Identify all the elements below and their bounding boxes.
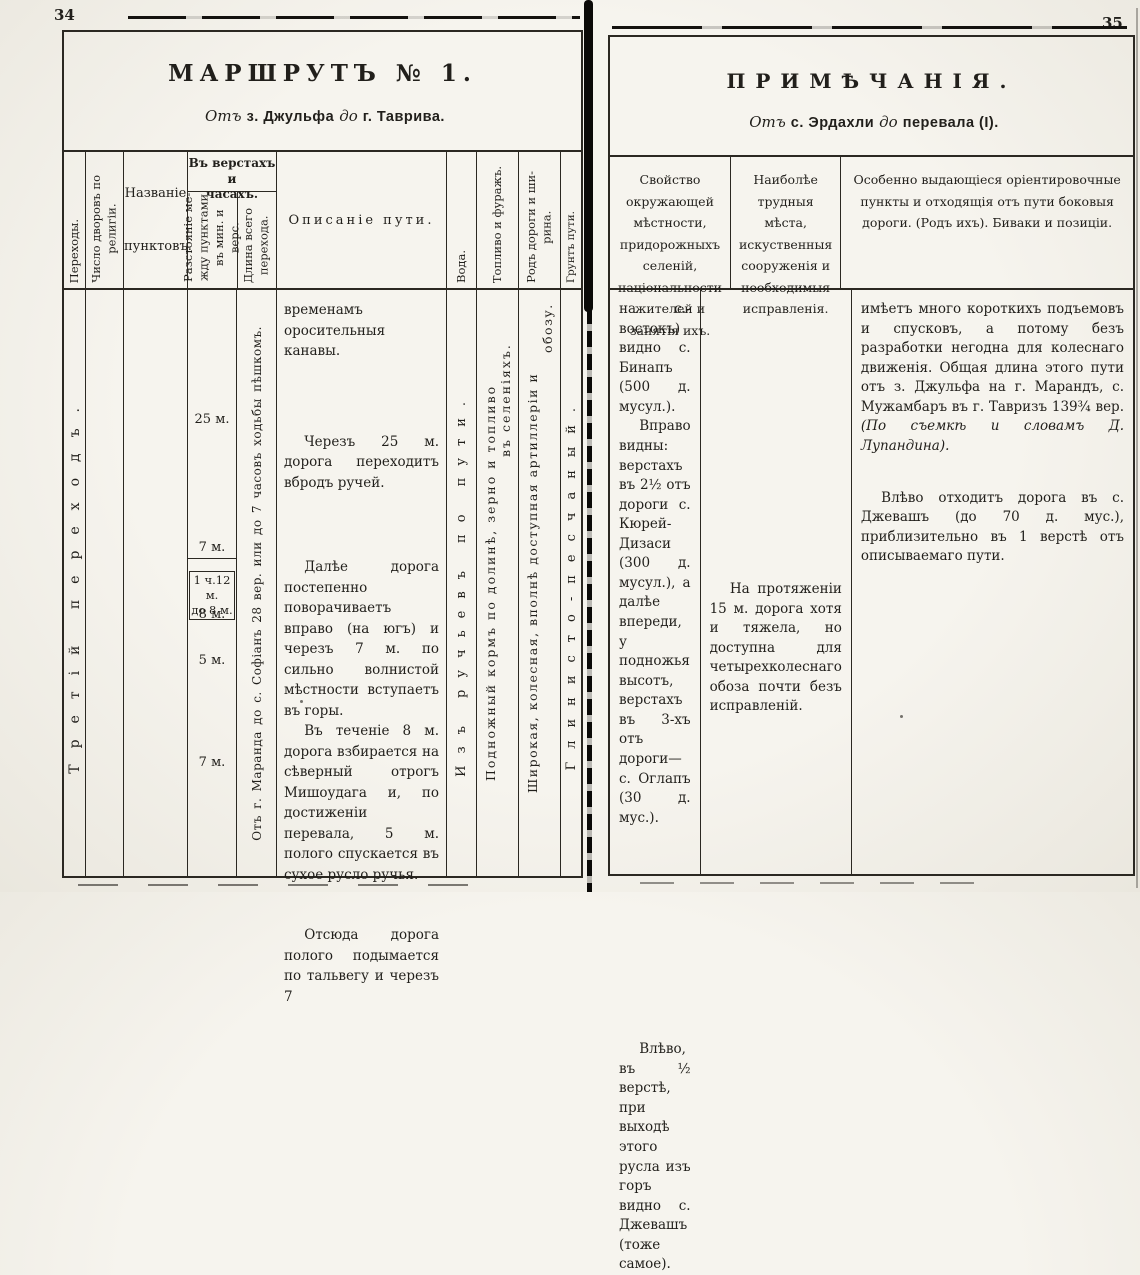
- route-subtitle-destination: г. Таврива.: [363, 109, 445, 125]
- route-subtitle-to-word: до: [339, 107, 358, 125]
- notes-cell-terrain: на с.-востокъ) видно с. Бинапъ (500 д. м…: [610, 290, 701, 874]
- distance-value: 8 м.: [188, 607, 236, 622]
- header-grunt-label: Грунтъ пути.: [564, 211, 578, 283]
- header-toplivo-label: Топливо и фуражъ.: [490, 166, 506, 283]
- notes-subtitle-destination: перевала (I).: [903, 115, 999, 131]
- header-rod-line1: Родъ дороги и ши-: [524, 171, 540, 283]
- notes-paragraph: на с.-востокъ) видно с. Бинапъ (500 д. м…: [619, 300, 691, 417]
- notes-body-row: на с.-востокъ) видно с. Бинапъ (500 д. м…: [610, 290, 1133, 874]
- header-rasstoyanie-line1: Разстояніе ме-: [181, 192, 197, 283]
- header-grunt: Грунтъ пути.: [561, 152, 581, 288]
- header-opisanie: Описаніе пути.: [277, 152, 447, 288]
- header-dvory-line1: Число дворовъ по: [89, 175, 105, 283]
- toplivo-text: Подножный кормъ по долинѣ, зерно и топли…: [483, 343, 513, 823]
- header-voda-label: Вода.: [454, 250, 470, 283]
- header-toplivo: Топливо и фуражъ.: [477, 152, 519, 288]
- notes-header-difficult-places: Наиболѣе трудныя мѣста, искуственныя соо…: [731, 157, 841, 288]
- header-rasstoyanie-line2: жду пунктами: [197, 192, 213, 283]
- header-dvory: Число дворовъ по религіи.: [86, 152, 124, 288]
- notes-title: ПРИМѢЧАНІЯ.: [610, 69, 1133, 93]
- rod-dorogi-text: Широкая, колесная, вполнѣ доступная арти…: [525, 303, 555, 863]
- route-subtitle-origin: з. Джульфа: [247, 109, 335, 125]
- route-description-paragraph: Черезъ 25 м. дорога переходитъ вбродъ ру…: [284, 432, 439, 494]
- page-edge-line: [1136, 8, 1138, 888]
- cell-opisanie: временамъ оросительныя канавы. Черезъ 25…: [277, 290, 447, 876]
- rod-dorogi-line1: Широкая, колесная, вполнѣ доступная арти…: [525, 303, 540, 863]
- header-dlina-label: Длина всего перехода.: [241, 208, 272, 283]
- notes-paragraph-source: (По съемкѣ и словамъ Д. Лупандина).: [861, 418, 1124, 454]
- distance-value: 7 м.: [188, 755, 236, 770]
- header-voda: Вода.: [447, 152, 477, 288]
- toplivo-line2: въ селеніяхъ.: [498, 343, 513, 823]
- route-title-block: МАРШРУТЪ № 1. Отъз. Джульфадог. Таврива.: [64, 32, 581, 152]
- scan-artifact-top-right: [612, 26, 1127, 29]
- binding-gutter-top: [584, 0, 593, 312]
- notes-paragraph: имѣетъ много короткихъ подъемовъ и спуск…: [861, 300, 1124, 457]
- grunt-text: Глинисто-песчаный.: [564, 395, 579, 770]
- rod-dorogi-line2: обозу.: [540, 303, 555, 863]
- notes-paragraph-main: имѣетъ много короткихъ подъемовъ и спуск…: [861, 301, 1124, 415]
- route-description-paragraph: Отсюда дорога полого подымается по тальв…: [284, 925, 439, 1007]
- notes-header-terrain: Свойство окружающей мѣстности, придорожн…: [610, 157, 731, 288]
- notes-table: ПРИМѢЧАНІЯ. Отъс. Эрдахлидоперевала (I).…: [608, 35, 1135, 876]
- dlina-note-text: Отъ г. Маранда до с. Софіанъ 28 вер. или…: [250, 326, 264, 841]
- header-opisanie-label: Описаніе пути.: [289, 213, 435, 228]
- header-nazvanie-line2: пунктовъ.: [124, 239, 187, 254]
- perekhod-label: Третій переходъ.: [67, 392, 83, 774]
- cell-grunt: Глинисто-песчаный.: [561, 290, 581, 876]
- header-rod-line2: рина.: [540, 171, 556, 283]
- cell-rod-dorogi: Широкая, колесная, вполнѣ доступная арти…: [519, 290, 561, 876]
- toplivo-line1: Подножный кормъ по долинѣ, зерно и топли…: [483, 343, 498, 823]
- route-subtitle: Отъз. Джульфадог. Таврива.: [64, 107, 581, 125]
- notes-title-block: ПРИМѢЧАНІЯ. Отъс. Эрдахлидоперевала (I).: [610, 37, 1133, 157]
- notes-paragraph: На протяженіи 15 м. дорога хотя и тяжела…: [710, 580, 842, 717]
- distance-value: 5 м.: [188, 653, 236, 668]
- notes-cell-difficult-places: На протяженіи 15 м. дорога хотя и тяжела…: [701, 290, 852, 874]
- notes-cell-landmarks: имѣетъ много короткихъ подъемовъ и спуск…: [852, 290, 1133, 874]
- header-perekhody-label: Переходы.: [67, 219, 83, 283]
- route-description-paragraph: Далѣе дорога постепенно поворачиваетъ вп…: [284, 557, 439, 721]
- header-rod-dorogi-label: Родъ дороги и ши- рина.: [524, 171, 555, 283]
- notes-header-landmarks: Особенно выдающіеся оріентировочные пунк…: [841, 157, 1133, 288]
- route-subtitle-from-word: Отъ: [205, 107, 242, 125]
- route-description-paragraph: временамъ оросительныя канавы.: [284, 300, 439, 362]
- scan-artifact-top-left: [128, 16, 580, 19]
- header-versty-subcolumns: Разстояніе ме- жду пунктами въ мин. и ве…: [188, 192, 276, 288]
- route-description-paragraph: Въ теченіе 8 м. дорога взбирается на сѣв…: [284, 721, 439, 885]
- header-rasstoyanie-label: Разстояніе ме- жду пунктами въ мин. и ве…: [181, 192, 243, 283]
- notes-paragraph: Вправо видны: верстахъ въ 2½ отъ дороги …: [619, 417, 691, 828]
- header-nazvanie-line1: Названіе: [124, 186, 187, 201]
- cell-voda: Изъ ручьевъ по пути.: [447, 290, 477, 876]
- cell-nazvanie: [124, 290, 188, 876]
- header-nazvanie: Названіе пунктовъ.: [124, 152, 188, 288]
- binding-gutter-bottom: [587, 308, 592, 892]
- header-versty-group-label: Въ верстахъ и часахъ.: [188, 152, 276, 192]
- route-title: МАРШРУТЪ № 1.: [64, 60, 581, 87]
- notes-subtitle-from-word: Отъ: [749, 113, 786, 131]
- route-table: МАРШРУТЪ № 1. Отъз. Джульфадог. Таврива.…: [62, 30, 583, 878]
- route-body-row: Третій переходъ. 25 м. 7 м. 1 ч.12 м. до…: [64, 290, 581, 876]
- cell-perekhod: Третій переходъ.: [64, 290, 86, 876]
- notes-subtitle-origin: с. Эрдахли: [791, 115, 874, 131]
- route-header-row: Переходы. Число дворовъ по религіи. Назв…: [64, 152, 581, 290]
- voda-text: Изъ ручьевъ по пути.: [454, 390, 469, 777]
- header-dvory-label: Число дворовъ по религіи.: [89, 175, 120, 283]
- header-dlina-line2: перехода.: [257, 208, 273, 283]
- header-dvory-line2: религіи.: [105, 175, 121, 283]
- notes-subtitle: Отъс. Эрдахлидоперевала (I).: [610, 113, 1133, 131]
- header-versty-line1: Въ верстахъ и: [189, 156, 276, 186]
- cell-dvory: [86, 290, 124, 876]
- notes-paragraph: Влѣво отходитъ дорога въ с. Джевашъ (до …: [861, 489, 1124, 567]
- notes-header-row: Свойство окружающей мѣстности, придорожн…: [610, 157, 1133, 290]
- header-rasstoyanie: Разстояніе ме- жду пунктами въ мин. и ве…: [188, 192, 238, 288]
- page-number-left: 34: [54, 6, 75, 24]
- distance-value: 25 м.: [188, 412, 236, 427]
- notes-paragraph: Влѣво, въ ½ верстѣ, при выходѣ этого рус…: [619, 1040, 691, 1275]
- cell-distances: 25 м. 7 м. 1 ч.12 м. до 8 м. 8 м. 5 м. 7…: [188, 290, 237, 876]
- cell-dlina-note: Отъ г. Маранда до с. Софіанъ 28 вер. или…: [237, 290, 277, 876]
- scan-artifact-bottom-right: [640, 882, 980, 884]
- header-dlina: Длина всего перехода.: [238, 192, 276, 288]
- distance-box-line1: 1 ч.12 м.: [190, 573, 234, 603]
- header-dlina-line1: Длина всего: [241, 208, 257, 283]
- cell-toplivo: Подножный кормъ по долинѣ, зерно и топли…: [477, 290, 519, 876]
- page-number-right: 35: [1102, 14, 1123, 32]
- header-rasstoyanie-line3: въ мин. и верс.: [213, 192, 244, 283]
- notes-subtitle-to-word: до: [879, 113, 898, 131]
- header-perekhody: Переходы.: [64, 152, 86, 288]
- header-versty-group: Въ верстахъ и часахъ. Разстояніе ме- жду…: [188, 152, 277, 288]
- header-rod-dorogi: Родъ дороги и ши- рина.: [519, 152, 561, 288]
- distance-value: 7 м.: [188, 540, 236, 559]
